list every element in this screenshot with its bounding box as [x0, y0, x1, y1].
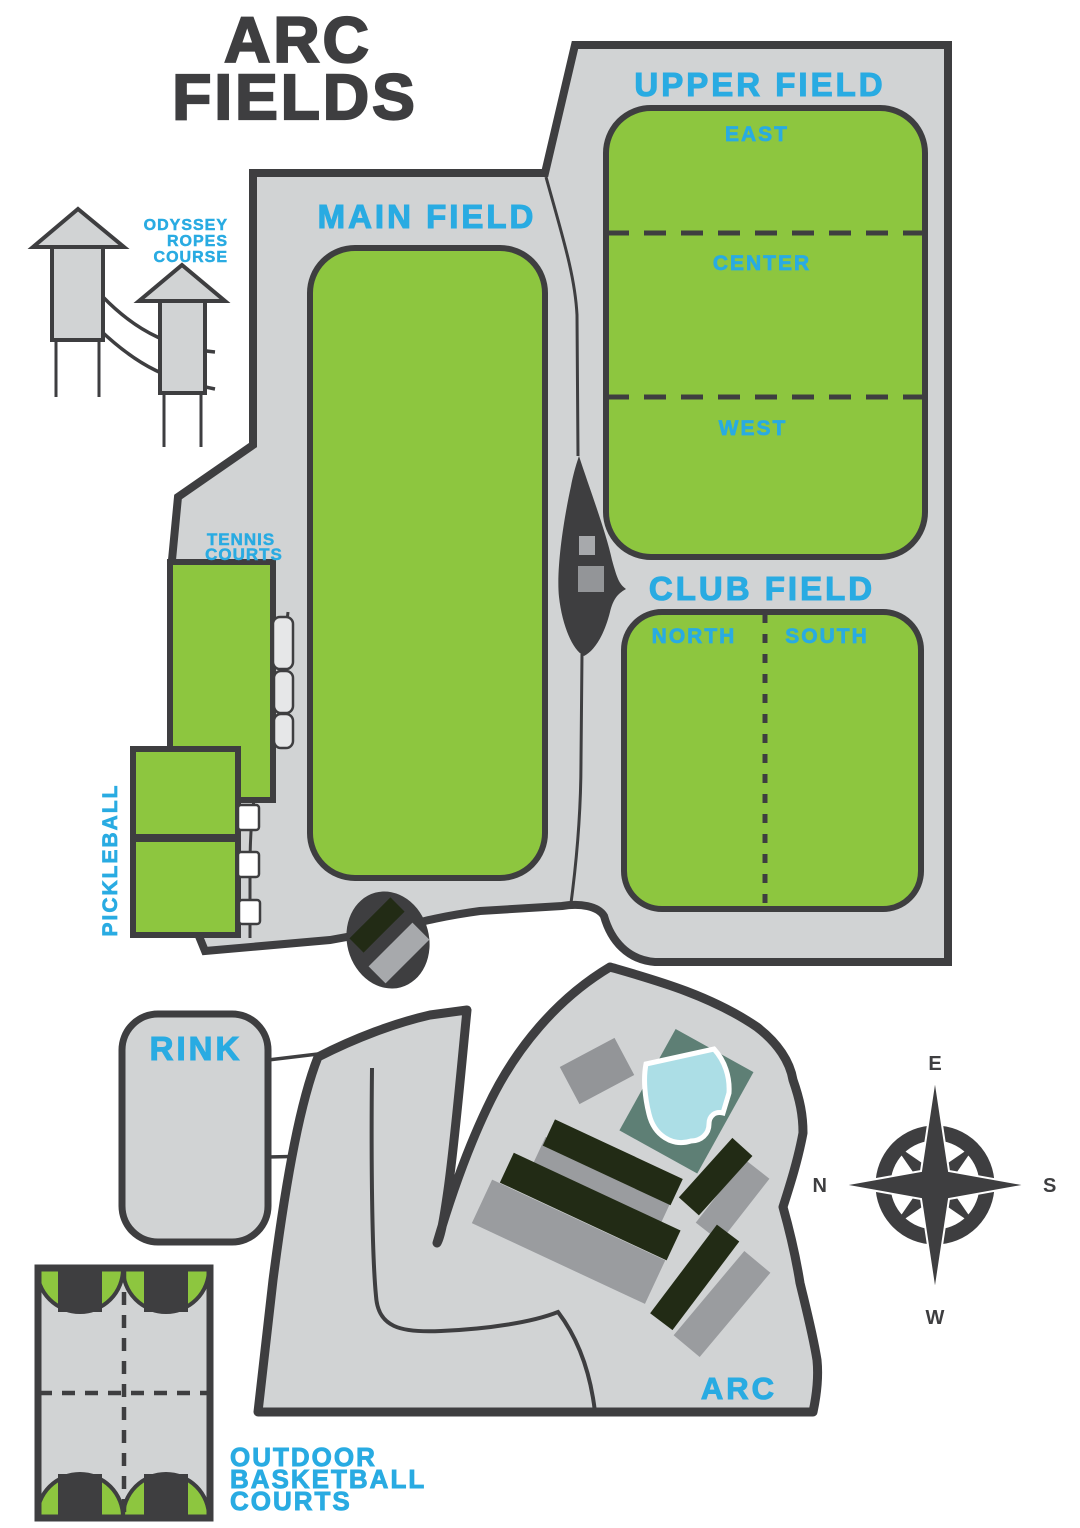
rink-label: RINK [150, 1030, 243, 1067]
main-field-label: MAIN FIELD [318, 198, 537, 235]
ropes-tower-2 [139, 265, 225, 447]
basketball-courts [37, 1268, 210, 1518]
tennis-gate-1 [273, 617, 293, 669]
ropes-course-label-2: ROPES [167, 233, 228, 250]
compass-left-label: N [813, 1175, 827, 1197]
compass-top-label: E [928, 1053, 941, 1075]
map-title-line-2: FIELDS [172, 61, 418, 133]
arc-fields-map: E S W N ARC FIELDS ODYSSEY ROPES COURSE … [0, 0, 1080, 1528]
upper-field-label: UPPER FIELD [634, 66, 885, 103]
tennis-gate-2 [274, 671, 293, 713]
compass-right-label: S [1043, 1175, 1056, 1197]
pickleball-gate-3 [239, 900, 260, 924]
upper-field-center-label: CENTER [713, 252, 811, 275]
basketball-label-3: COURTS [230, 1486, 352, 1516]
rink-connector-1 [268, 1054, 318, 1060]
pickleball-gate-1 [238, 805, 259, 830]
pickleball-label: PICKLEBALL [99, 784, 122, 937]
bb-paint-bottom-right [144, 1474, 188, 1517]
upper-field [606, 108, 925, 557]
club-field-south-label: SOUTH [785, 625, 869, 648]
main-field [310, 248, 545, 878]
bb-paint-bottom-left [58, 1474, 102, 1517]
ropes-course-label-1: ODYSSEY [144, 217, 228, 234]
pickleball-gate-2 [238, 852, 259, 877]
compass-bottom-label: W [926, 1307, 945, 1329]
club-field-north-label: NORTH [652, 625, 737, 648]
pickleball-court-2 [133, 839, 238, 935]
entrance-building-large [578, 566, 604, 592]
club-field-label: CLUB FIELD [649, 570, 875, 607]
arc-building-label: ARC [701, 1371, 777, 1406]
bb-paint-top-left [58, 1269, 102, 1312]
upper-field-west-label: WEST [719, 417, 788, 440]
upper-field-east-label: EAST [725, 123, 789, 146]
entrance-building-small [579, 536, 595, 555]
club-field [624, 612, 921, 909]
pickleball-court-1 [133, 749, 238, 837]
bb-paint-top-right [144, 1269, 188, 1312]
ropes-course-label-3: COURSE [154, 249, 228, 266]
compass-rose-icon: E S W N [813, 1053, 1057, 1329]
tennis-gate-3 [274, 714, 293, 748]
tennis-label-2: COURTS [205, 545, 283, 564]
